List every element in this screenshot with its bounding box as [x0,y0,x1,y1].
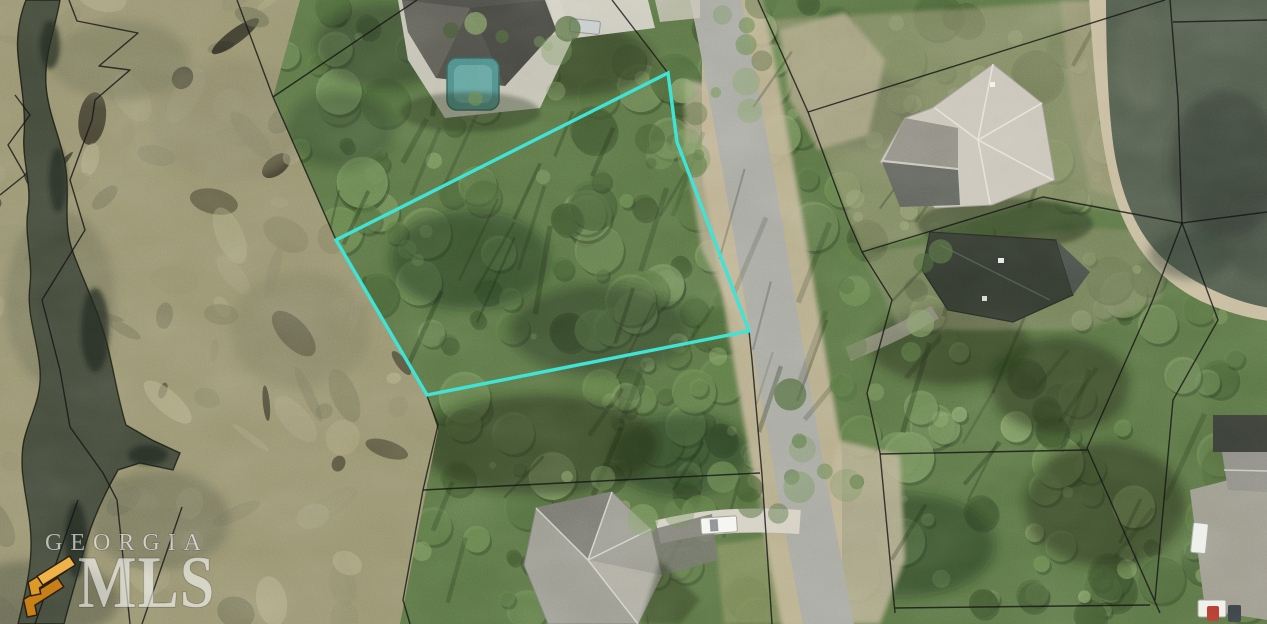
aerial-photo-canvas: GEORGIA MLS [0,0,1267,624]
watermark-mls-text: MLS [78,541,215,623]
aerial-parcel-photo: GEORGIA MLS [0,0,1267,624]
